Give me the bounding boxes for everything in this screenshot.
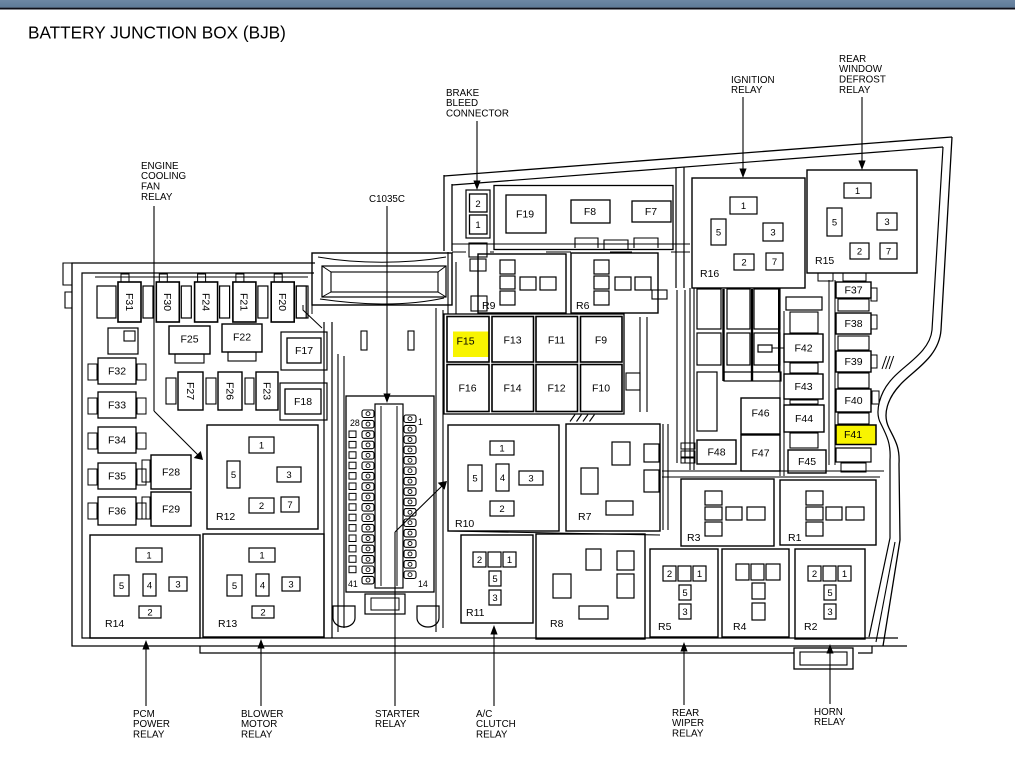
svg-text:1: 1 <box>499 443 504 454</box>
svg-text:5: 5 <box>119 581 124 592</box>
svg-text:F15: F15 <box>456 336 474 348</box>
svg-text:F29: F29 <box>162 504 180 516</box>
svg-text:F34: F34 <box>108 435 126 447</box>
svg-text:RELAY: RELAY <box>133 730 165 741</box>
svg-text:1: 1 <box>741 201 746 212</box>
svg-text:F33: F33 <box>108 400 126 412</box>
svg-text:F10: F10 <box>592 383 610 395</box>
svg-text:IGNITION: IGNITION <box>731 75 775 86</box>
svg-text:RELAY: RELAY <box>476 730 508 741</box>
svg-text:4: 4 <box>500 473 505 484</box>
svg-text:2: 2 <box>499 504 504 515</box>
svg-text:4: 4 <box>260 580 265 591</box>
svg-text:1: 1 <box>259 440 264 451</box>
svg-text:F30: F30 <box>161 293 173 311</box>
svg-text:R6: R6 <box>576 300 590 312</box>
svg-text:RELAY: RELAY <box>814 717 846 728</box>
svg-text:5: 5 <box>716 227 721 238</box>
svg-text:3: 3 <box>770 227 775 238</box>
svg-text:R15: R15 <box>815 255 834 267</box>
svg-text:R9: R9 <box>482 300 496 312</box>
svg-text:R11: R11 <box>466 607 485 619</box>
svg-text:F14: F14 <box>503 383 521 395</box>
svg-text:F22: F22 <box>233 332 251 344</box>
svg-text:F20: F20 <box>276 293 288 311</box>
svg-text:F23: F23 <box>260 382 272 400</box>
svg-text:F8: F8 <box>584 206 596 218</box>
svg-text:1: 1 <box>507 555 512 566</box>
svg-text:REAR: REAR <box>839 54 866 65</box>
svg-text:F26: F26 <box>223 382 235 400</box>
svg-text:R5: R5 <box>658 621 672 633</box>
svg-text:2: 2 <box>857 246 862 257</box>
svg-text:BLEED: BLEED <box>446 98 478 109</box>
svg-text:R2: R2 <box>804 621 818 633</box>
svg-text:R3: R3 <box>687 532 701 544</box>
svg-text:PCM: PCM <box>133 709 155 720</box>
svg-text:1: 1 <box>697 569 702 580</box>
svg-text:3: 3 <box>827 607 832 618</box>
svg-text:RELAY: RELAY <box>241 730 273 741</box>
svg-text:5: 5 <box>232 581 237 592</box>
svg-text:F12: F12 <box>547 383 565 395</box>
svg-text:REAR: REAR <box>672 708 699 719</box>
svg-text:2: 2 <box>260 607 265 618</box>
svg-text:1: 1 <box>146 550 151 561</box>
svg-text:DEFROST: DEFROST <box>839 75 886 86</box>
svg-text:F11: F11 <box>548 335 565 347</box>
svg-text:F37: F37 <box>844 285 862 297</box>
svg-text:F19: F19 <box>516 209 534 221</box>
svg-text:4: 4 <box>147 580 152 591</box>
svg-text:41: 41 <box>348 579 358 589</box>
svg-text:F44: F44 <box>795 413 813 425</box>
svg-text:F45: F45 <box>798 456 816 468</box>
svg-text:RELAY: RELAY <box>839 85 871 96</box>
svg-text:F9: F9 <box>595 335 607 347</box>
svg-text:F21: F21 <box>238 293 250 311</box>
svg-text:R13: R13 <box>218 618 237 630</box>
svg-text:STARTER: STARTER <box>375 709 420 720</box>
svg-text:F16: F16 <box>458 383 476 395</box>
svg-text:F35: F35 <box>108 471 126 483</box>
svg-text:F13: F13 <box>503 335 521 347</box>
svg-text:5: 5 <box>231 470 236 481</box>
svg-text:28: 28 <box>350 418 360 428</box>
svg-text:7: 7 <box>287 500 292 511</box>
svg-text:ENGINE: ENGINE <box>141 161 179 172</box>
svg-text:WINDOW: WINDOW <box>839 64 883 75</box>
svg-text:7: 7 <box>772 257 777 268</box>
svg-text:2: 2 <box>477 555 482 566</box>
svg-text:R14: R14 <box>105 618 124 630</box>
svg-text:2: 2 <box>812 569 817 580</box>
svg-text:F24: F24 <box>199 293 211 311</box>
svg-text:BATTERY JUNCTION BOX (BJB): BATTERY JUNCTION BOX (BJB) <box>28 23 286 43</box>
svg-text:F42: F42 <box>794 343 812 355</box>
svg-text:1: 1 <box>475 220 480 231</box>
svg-text:5: 5 <box>472 473 477 484</box>
svg-text:BRAKE: BRAKE <box>446 88 480 99</box>
svg-text:3: 3 <box>682 607 687 618</box>
svg-text:5: 5 <box>827 588 832 599</box>
svg-text:2: 2 <box>147 607 152 618</box>
svg-text:5: 5 <box>832 217 837 228</box>
svg-text:1: 1 <box>842 569 847 580</box>
svg-text:BLOWER: BLOWER <box>241 709 283 720</box>
svg-text:7: 7 <box>886 246 891 257</box>
svg-text:C1035C: C1035C <box>369 194 405 205</box>
svg-text:3: 3 <box>288 579 293 590</box>
svg-text:2: 2 <box>475 199 480 210</box>
svg-text:MOTOR: MOTOR <box>241 719 277 730</box>
svg-text:F31: F31 <box>123 293 135 311</box>
svg-text:F27: F27 <box>184 382 196 400</box>
svg-text:R7: R7 <box>578 511 592 523</box>
svg-text:R4: R4 <box>733 621 747 633</box>
svg-text:R16: R16 <box>700 268 719 280</box>
svg-text:2: 2 <box>667 569 672 580</box>
svg-text:R1: R1 <box>788 532 802 544</box>
svg-text:F36: F36 <box>108 506 126 518</box>
svg-text:R8: R8 <box>550 618 564 630</box>
svg-text:R12: R12 <box>216 511 235 523</box>
svg-text:F28: F28 <box>162 467 180 479</box>
svg-text:3: 3 <box>492 593 497 604</box>
svg-text:1: 1 <box>855 186 860 197</box>
svg-text:F18: F18 <box>294 396 312 408</box>
svg-text:3: 3 <box>175 579 180 590</box>
svg-text:F47: F47 <box>751 448 769 460</box>
svg-text:3: 3 <box>286 470 291 481</box>
svg-text:2: 2 <box>741 257 746 268</box>
svg-text:F46: F46 <box>751 408 769 420</box>
svg-text:1: 1 <box>259 550 264 561</box>
svg-text:3: 3 <box>884 217 889 228</box>
svg-text:F43: F43 <box>794 381 812 393</box>
svg-text:2: 2 <box>259 501 264 512</box>
svg-text:CONNECTOR: CONNECTOR <box>446 109 509 120</box>
svg-text:5: 5 <box>682 588 687 599</box>
svg-text:F17: F17 <box>295 345 313 357</box>
svg-text:F38: F38 <box>844 318 862 330</box>
svg-text:14: 14 <box>418 579 428 589</box>
svg-text:F41: F41 <box>844 429 862 441</box>
svg-text:RELAY: RELAY <box>731 85 763 96</box>
svg-text:F40: F40 <box>844 395 862 407</box>
svg-text:F48: F48 <box>707 447 725 459</box>
svg-text:RELAY: RELAY <box>672 729 704 740</box>
svg-text:1: 1 <box>418 417 423 427</box>
svg-text:CLUTCH: CLUTCH <box>476 719 516 730</box>
svg-text:FAN: FAN <box>141 182 160 193</box>
svg-text:3: 3 <box>528 473 533 484</box>
svg-text:A/C: A/C <box>476 709 492 720</box>
svg-text:WIPER: WIPER <box>672 718 704 729</box>
svg-text:R10: R10 <box>455 518 474 530</box>
svg-text:COOLING: COOLING <box>141 171 186 182</box>
svg-text:F7: F7 <box>645 206 657 218</box>
svg-text:POWER: POWER <box>133 719 170 730</box>
svg-text:F25: F25 <box>180 334 198 346</box>
svg-text:F39: F39 <box>844 356 862 368</box>
svg-text:HORN: HORN <box>814 707 843 718</box>
svg-text:F32: F32 <box>108 366 126 378</box>
svg-text:RELAY: RELAY <box>375 719 407 730</box>
svg-text:5: 5 <box>492 574 497 585</box>
svg-text:RELAY: RELAY <box>141 192 173 203</box>
